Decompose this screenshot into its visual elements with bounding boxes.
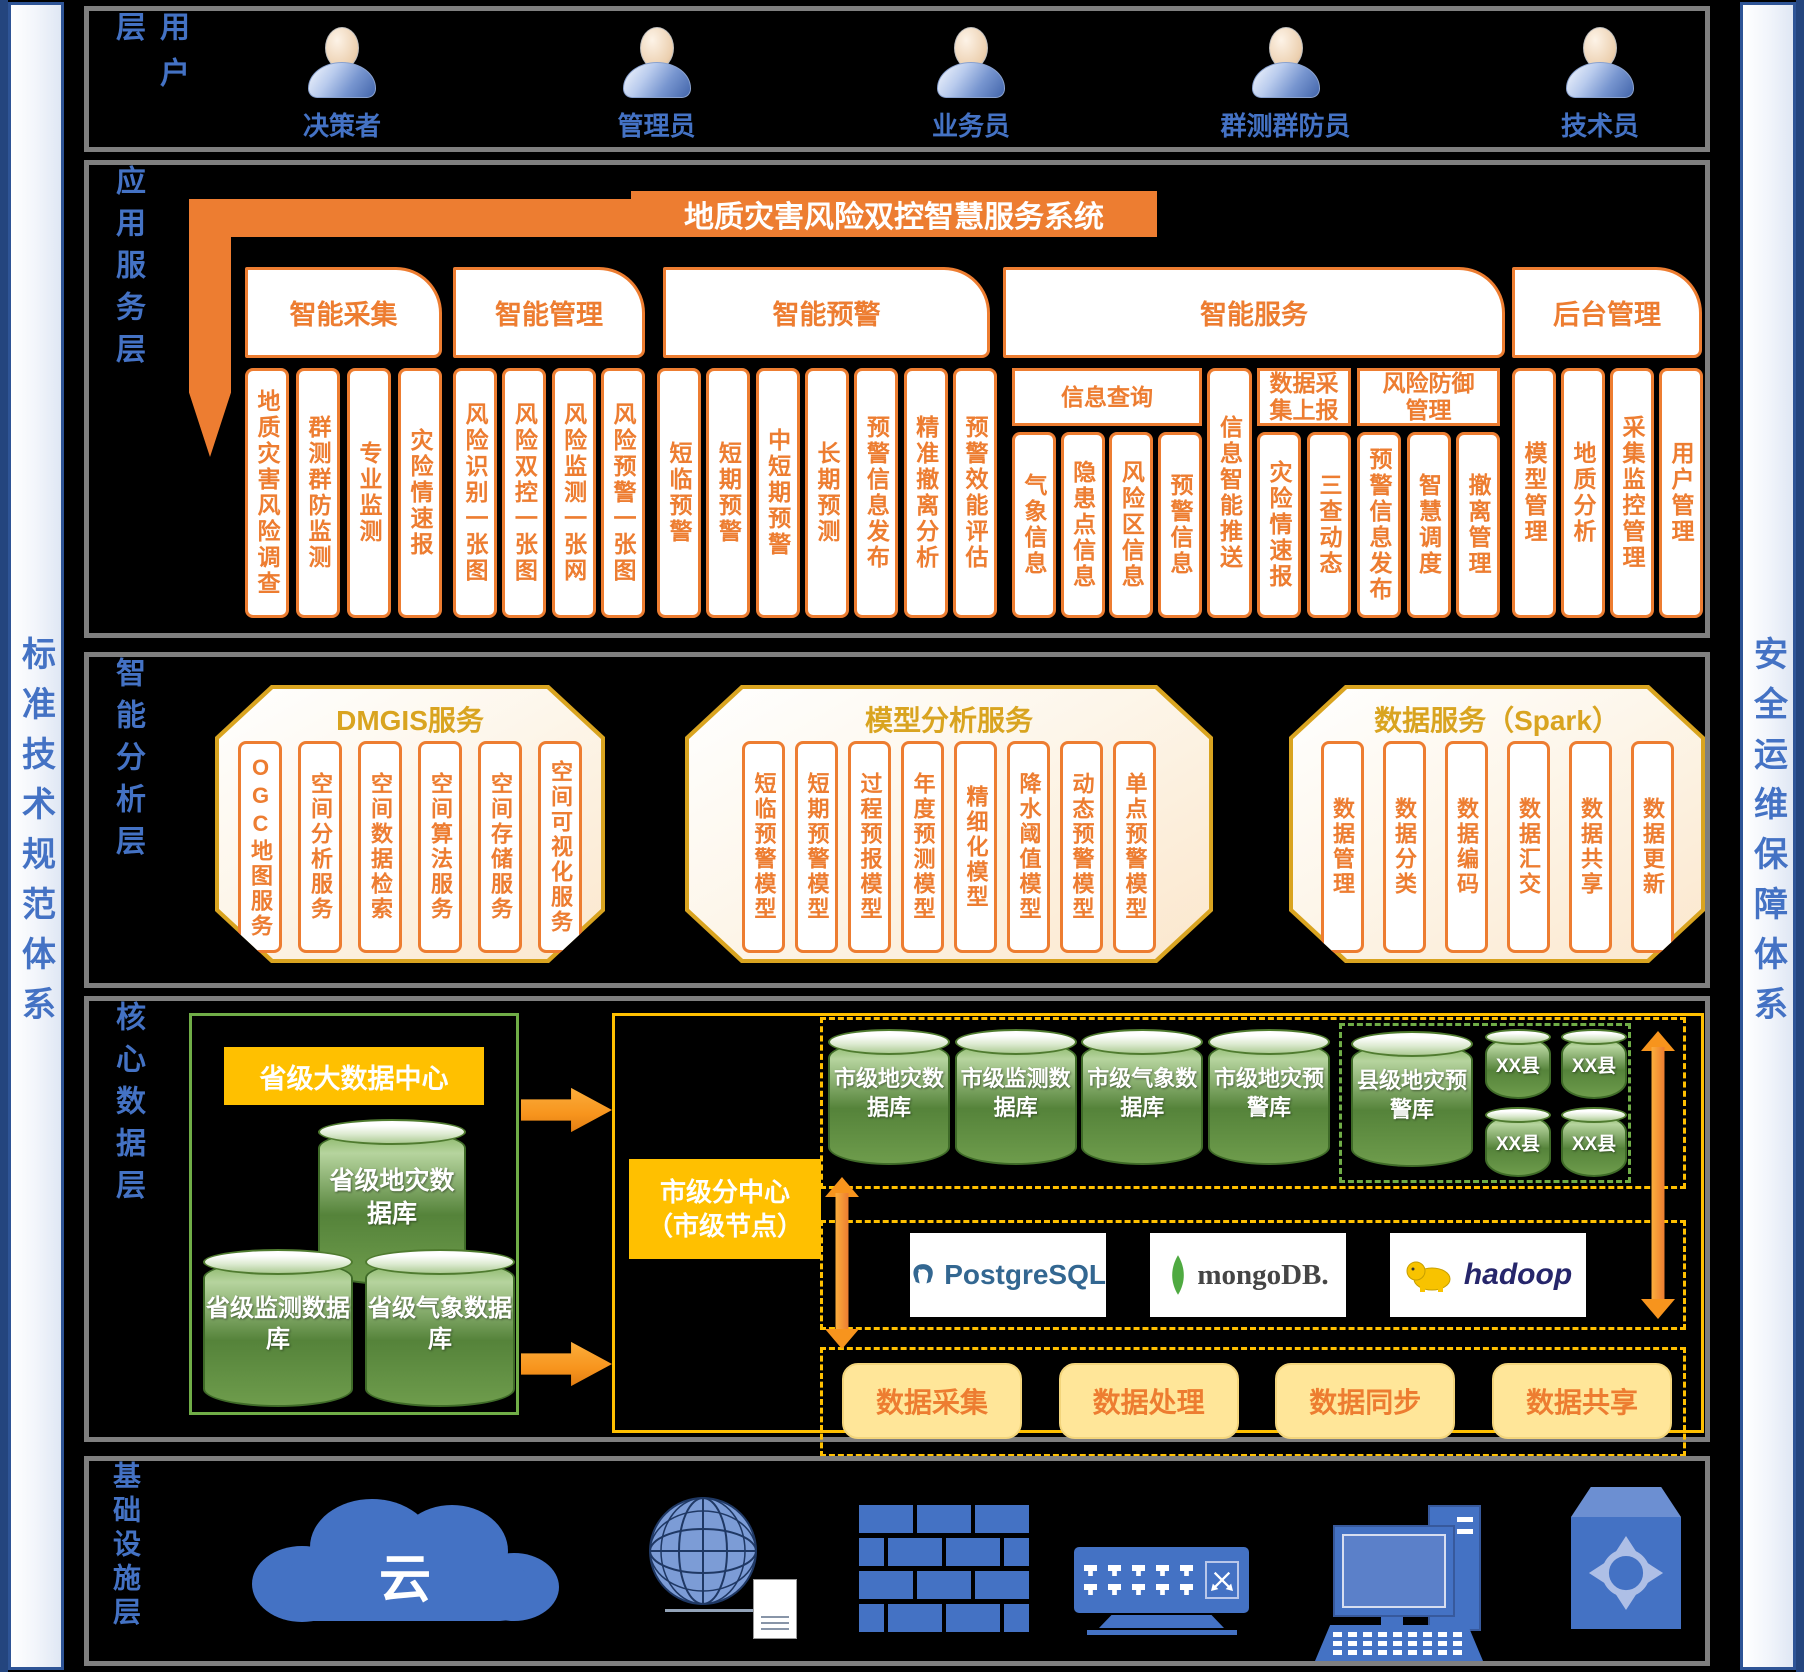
data-layer-label: 核心数据层 xyxy=(105,1001,149,1437)
analysis-column: 数据管理 xyxy=(1321,741,1364,953)
users-row: 决策者 管理员 业务员 xyxy=(262,27,1680,143)
user-item: 业务员 xyxy=(891,27,1051,143)
ribbon-bar-horizontal xyxy=(189,199,635,237)
left-sidebar: 标准技术规范体系 xyxy=(8,2,64,1670)
service-column: 智慧调度 xyxy=(1407,432,1451,618)
person-torso xyxy=(1566,62,1634,98)
service-column: 隐患点信息 xyxy=(1061,432,1105,618)
system-title-banner: 地质灾害风险双控智慧服务系统 xyxy=(631,191,1157,237)
backend-columns: 模型管理地质分析采集监控管理用户管理 xyxy=(1512,368,1703,618)
analysis-column: 空间数据检索 xyxy=(358,741,402,953)
switch-crossover-icon xyxy=(1205,1561,1239,1599)
service-column: 采集监控管理 xyxy=(1610,368,1654,618)
user-layer-label: 用户层 xyxy=(105,11,193,147)
service-column: 预警信息发布 xyxy=(854,368,898,618)
service-column: 用户管理 xyxy=(1659,368,1703,618)
database-cylinder: 市级地灾数据库 xyxy=(828,1029,950,1165)
database-cylinder: 省级监测数据库 xyxy=(203,1249,353,1407)
user-label: 决策者 xyxy=(262,106,422,143)
service-column: 气象信息 xyxy=(1012,432,1056,618)
service-column: 三查动态 xyxy=(1307,432,1351,618)
service-column: 中短期预警 xyxy=(756,368,800,618)
user-item: 群测群防员 xyxy=(1206,27,1366,143)
person-icon xyxy=(936,27,1006,98)
database-cylinder: 市级气象数据库 xyxy=(1081,1029,1203,1165)
analysis-column: 空间算法服务 xyxy=(418,741,462,953)
dmgis-card: DMGIS服务 OGC地图服务空间分析服务空间数据检索空间算法服务空间存储服务空… xyxy=(215,685,605,963)
person-torso xyxy=(623,62,691,98)
function-box: 数据采集 xyxy=(842,1363,1022,1439)
person-icon xyxy=(1565,27,1635,98)
spark-columns: 数据管理数据分类数据编码数据汇交数据共享数据更新 xyxy=(1289,741,1705,953)
service-column-info-push: 信息智能推送 xyxy=(1207,368,1252,618)
city-node-line1: 市级分中心 xyxy=(660,1175,790,1209)
cylinder-label: 市级监测数据库 xyxy=(957,1065,1075,1122)
service-column: 长期预测 xyxy=(805,368,849,618)
dmgis-columns: OGC地图服务空间分析服务空间数据检索空间算法服务空间存储服务空间可视化服务 xyxy=(215,741,605,953)
user-label: 管理员 xyxy=(577,106,737,143)
user-label: 业务员 xyxy=(891,106,1051,143)
service-column: 灾险情速报 xyxy=(398,368,442,618)
spark-data-title: 数据服务（Spark） xyxy=(1289,699,1705,739)
mongodb-leaf-icon xyxy=(1167,1255,1189,1295)
server-doc-icon xyxy=(753,1579,797,1639)
postgresql-label: PostgreSQL xyxy=(944,1259,1106,1291)
analysis-column: 数据汇交 xyxy=(1507,741,1550,953)
cylinder-label: 市级气象数据库 xyxy=(1083,1065,1201,1122)
function-box: 数据处理 xyxy=(1059,1363,1239,1439)
infra-layer-label: 基础设施层 xyxy=(105,1461,145,1661)
service-column: 撤离管理 xyxy=(1456,432,1500,618)
cylinder-label: 市级地灾预警库 xyxy=(1210,1065,1328,1122)
analysis-column: 数据更新 xyxy=(1631,741,1674,953)
county-node-grid: XX县 XX县 XX县 XX县 xyxy=(1485,1029,1627,1177)
user-label: 技术员 xyxy=(1520,106,1680,143)
analysis-column: 空间分析服务 xyxy=(298,741,342,953)
model-analysis-title: 模型分析服务 xyxy=(685,699,1213,739)
service-column: 风险双控一张图 xyxy=(502,368,546,618)
right-edge-strip xyxy=(1796,0,1804,1672)
globe-icon xyxy=(647,1495,759,1612)
firewall-icon xyxy=(859,1505,1029,1642)
analysis-column: OGC地图服务 xyxy=(238,741,282,953)
service-column: 预警信息发布 xyxy=(1357,432,1401,618)
user-item: 决策者 xyxy=(262,27,422,143)
service-column: 预警信息 xyxy=(1158,432,1202,618)
double-arrow-icon xyxy=(1641,1031,1675,1319)
person-torso xyxy=(937,62,1005,98)
user-layer-panel: 用户层 决策者 管理员 xyxy=(84,6,1710,152)
cylinder-label: XX县 xyxy=(1487,1133,1549,1158)
globe-connector-line xyxy=(665,1609,761,1612)
analysis-column: 短临预警模型 xyxy=(742,741,785,953)
arrow-right-icon xyxy=(521,1087,612,1133)
service-column: 风险预警一张图 xyxy=(601,368,645,618)
person-icon xyxy=(622,27,692,98)
service-column: 短期预警 xyxy=(706,368,750,618)
ribbon-bar-vertical xyxy=(189,199,231,457)
hadoop-elephant-icon xyxy=(1404,1257,1456,1293)
postgresql-elephant-icon xyxy=(910,1254,936,1296)
analysis-column: 空间存储服务 xyxy=(478,741,522,953)
cylinder-lid xyxy=(365,1249,515,1275)
cloud-icon: 云 xyxy=(240,1489,570,1634)
database-cylinder: 市级监测数据库 xyxy=(955,1029,1077,1165)
data-layer-panel: 核心数据层 省级大数据中心 省级地灾数据库 省级监测数据库 省级气象数据库 xyxy=(84,996,1710,1442)
analysis-column: 空间可视化服务 xyxy=(538,741,582,953)
dmgis-title: DMGIS服务 xyxy=(215,699,605,739)
user-item: 管理员 xyxy=(577,27,737,143)
right-sidebar: 安全运维保障体系 xyxy=(1740,2,1796,1670)
analysis-column: 短期预警模型 xyxy=(795,741,838,953)
model-analysis-card: 模型分析服务 短临预警模型短期预警模型过程预报模型年度预测模型精细化模型降水阈值… xyxy=(685,685,1213,963)
service-column: 风险监测一张网 xyxy=(552,368,596,618)
cylinder-lid xyxy=(1561,1029,1627,1045)
county-node-cylinder: XX县 xyxy=(1561,1029,1627,1099)
analysis-column: 数据共享 xyxy=(1569,741,1612,953)
analysis-column: 精细化模型 xyxy=(954,741,997,953)
function-box: 数据同步 xyxy=(1275,1363,1455,1439)
tab-smart-manage: 智能管理 xyxy=(453,267,645,358)
cylinder-label: XX县 xyxy=(1487,1055,1549,1080)
county-db-cylinder: 县级地灾预警库 xyxy=(1351,1031,1473,1167)
cylinder-lid xyxy=(203,1249,353,1275)
database-cylinder: 省级气象数据库 xyxy=(365,1249,515,1407)
routing-arrows-icon xyxy=(1587,1534,1665,1612)
mongodb-logo: mongoDB. xyxy=(1150,1233,1346,1317)
person-torso xyxy=(1252,62,1320,98)
province-center-box: 省级大数据中心 xyxy=(224,1047,484,1105)
database-cylinder: 市级地灾预警库 xyxy=(1208,1029,1330,1165)
cylinder-lid xyxy=(1351,1031,1473,1057)
cylinder-label: 省级监测数据库 xyxy=(205,1293,351,1355)
analysis-column: 降水阈值模型 xyxy=(1007,741,1050,953)
functions-row: 数据采集数据处理数据同步数据共享 xyxy=(842,1363,1672,1439)
risk-defense-columns: 预警信息发布智慧调度撤离管理 xyxy=(1357,432,1500,618)
cylinder-label: 市级地灾数据库 xyxy=(830,1065,948,1122)
smart-warning-columns: 短临预警短期预警中短期预警长期预测预警信息发布精准撤离分析预警效能评估 xyxy=(657,368,997,618)
analysis-column: 过程预报模型 xyxy=(848,741,891,953)
cylinder-label: 省级地灾数据库 xyxy=(320,1165,464,1230)
service-column: 风险识别一张图 xyxy=(453,368,497,618)
city-node-line2: （市级节点） xyxy=(647,1209,803,1243)
data-report-columns: 灾险情速报三查动态 xyxy=(1257,432,1351,618)
function-box: 数据共享 xyxy=(1492,1363,1672,1439)
user-label: 群测群防员 xyxy=(1206,106,1366,143)
service-column: 地质灾害风险调查 xyxy=(245,368,289,618)
service-column: 风险区信息 xyxy=(1109,432,1153,618)
analysis-column: 年度预测模型 xyxy=(901,741,944,953)
logos-row: PostgreSQL mongoDB. hadoop xyxy=(910,1233,1586,1317)
city-node-box: 市级分中心 （市级节点） xyxy=(629,1159,821,1259)
cylinder-lid xyxy=(1208,1029,1330,1055)
cylinder-lid xyxy=(318,1119,466,1145)
service-column: 群测群防监测 xyxy=(296,368,340,618)
smart-manage-columns: 风险识别一张图风险双控一张图风险监测一张网风险预警一张图 xyxy=(453,368,645,618)
person-icon xyxy=(307,27,377,98)
person-icon xyxy=(1251,27,1321,98)
analysis-column: 数据分类 xyxy=(1383,741,1426,953)
analysis-column: 数据编码 xyxy=(1445,741,1488,953)
service-column: 灾险情速报 xyxy=(1257,432,1301,618)
app-layer-panel: 应用服务层 地质灾害风险双控智慧服务系统 智能采集 智能管理 智能预警 智能服务… xyxy=(84,160,1710,638)
tab-smart-collect: 智能采集 xyxy=(245,267,442,358)
user-item: 技术员 xyxy=(1520,27,1680,143)
app-layer-label: 应用服务层 xyxy=(105,165,149,633)
cylinder-lid xyxy=(1485,1107,1551,1123)
service-column: 地质分析 xyxy=(1561,368,1605,618)
cylinder-label: XX县 xyxy=(1563,1133,1625,1158)
cylinder-lid xyxy=(1485,1029,1551,1045)
county-node-cylinder: XX县 xyxy=(1561,1107,1627,1177)
right-sidebar-label: 安全运维保障体系 xyxy=(1744,636,1793,1036)
hadoop-label: hadoop xyxy=(1464,1258,1572,1292)
tab-smart-warning: 智能预警 xyxy=(663,267,990,358)
analysis-layer-panel: 智能分析层 DMGIS服务 OGC地图服务空间分析服务空间数据检索空间算法服务空… xyxy=(84,652,1710,988)
tab-smart-service: 智能服务 xyxy=(1003,267,1505,358)
province-db-row: 省级监测数据库 省级气象数据库 xyxy=(203,1249,515,1409)
cloud-text: 云 xyxy=(240,1537,570,1612)
left-edge-strip xyxy=(0,0,8,1672)
tab-backend-manage: 后台管理 xyxy=(1512,267,1702,358)
spark-data-card: 数据服务（Spark） 数据管理数据分类数据编码数据汇交数据共享数据更新 xyxy=(1289,685,1705,963)
infra-layer-panel: 基础设施层 云 xyxy=(84,1456,1710,1666)
info-query-columns: 气象信息隐患点信息风险区信息预警信息 xyxy=(1012,432,1202,618)
county-node-cylinder: XX县 xyxy=(1485,1107,1551,1177)
double-arrow-icon xyxy=(825,1177,859,1349)
cylinder-lid xyxy=(1561,1107,1627,1123)
subgroup-header-info-query: 信息查询 xyxy=(1012,368,1202,426)
person-torso xyxy=(308,62,376,98)
analysis-column: 单点预警模型 xyxy=(1113,741,1156,953)
left-sidebar-label: 标准技术规范体系 xyxy=(12,636,61,1036)
cylinder-label: XX县 xyxy=(1563,1055,1625,1080)
cylinder-lid xyxy=(955,1029,1077,1055)
postgresql-logo: PostgreSQL xyxy=(910,1233,1106,1317)
county-node-cylinder: XX县 xyxy=(1485,1029,1551,1099)
service-column: 短临预警 xyxy=(657,368,701,618)
service-column: 精准撤离分析 xyxy=(904,368,948,618)
analysis-column: 动态预警模型 xyxy=(1060,741,1103,953)
subgroup-header-data-report: 数据采集上报 xyxy=(1257,368,1351,426)
model-columns: 短临预警模型短期预警模型过程预报模型年度预测模型精细化模型降水阈值模型动态预警模… xyxy=(685,741,1213,953)
mongodb-label: mongoDB. xyxy=(1197,1259,1328,1292)
smart-collect-columns: 地质灾害风险调查群测群防监测专业监测灾险情速报 xyxy=(245,368,442,618)
hadoop-logo: hadoop xyxy=(1390,1233,1586,1317)
subgroup-header-risk-defense: 风险防御管理 xyxy=(1357,368,1500,426)
cylinder-label: 县级地灾预警库 xyxy=(1353,1067,1471,1124)
service-column: 模型管理 xyxy=(1512,368,1556,618)
arrow-right-icon xyxy=(521,1341,612,1387)
service-column: 预警效能评估 xyxy=(953,368,997,618)
cylinder-lid xyxy=(828,1029,950,1055)
service-column: 专业监测 xyxy=(347,368,391,618)
analysis-layer-label: 智能分析层 xyxy=(105,657,149,983)
cylinder-lid xyxy=(1081,1029,1203,1055)
cylinder-label: 省级气象数据库 xyxy=(367,1293,513,1355)
city-db-row: 市级地灾数据库 市级监测数据库 市级气象数据库 市级地灾预警库 xyxy=(828,1029,1330,1165)
architecture-diagram: 标准技术规范体系 安全运维保障体系 用户层 决策者 管理员 xyxy=(0,0,1804,1672)
